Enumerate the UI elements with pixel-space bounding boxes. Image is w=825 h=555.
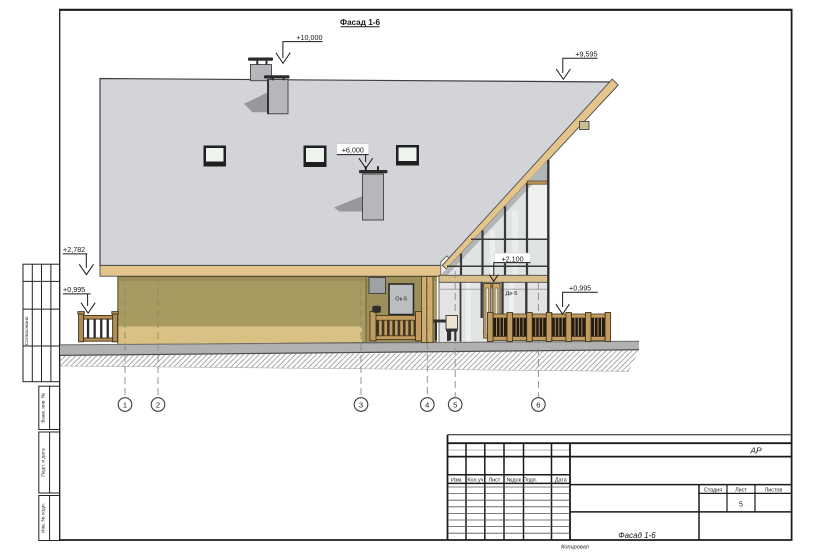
svg-text:Фасад 1-6: Фасад 1-6 bbox=[340, 18, 381, 27]
svg-text:Лист: Лист bbox=[489, 477, 501, 483]
svg-text:5: 5 bbox=[739, 502, 743, 509]
svg-text:Де-5: Де-5 bbox=[506, 291, 518, 297]
svg-text:4: 4 bbox=[425, 400, 429, 409]
svg-text:+0,995: +0,995 bbox=[63, 285, 85, 294]
svg-text:Подп. и дата: Подп. и дата bbox=[41, 448, 47, 477]
svg-text:+2,100: +2,100 bbox=[501, 254, 523, 263]
svg-text:2: 2 bbox=[156, 400, 160, 409]
svg-text:АР: АР bbox=[749, 445, 762, 455]
svg-text:Инв. № подл.: Инв. № подл. bbox=[41, 503, 47, 533]
svg-text:Взам. инв. №: Взам. инв. № bbox=[41, 393, 47, 423]
svg-text:+6,000: +6,000 bbox=[342, 145, 364, 154]
svg-text:+9,595: +9,595 bbox=[575, 50, 597, 59]
svg-text:Кол.уч: Кол.уч bbox=[467, 477, 483, 483]
svg-text:Листов: Листов bbox=[765, 487, 783, 493]
svg-text:3: 3 bbox=[359, 400, 363, 409]
svg-text:5: 5 bbox=[453, 400, 457, 409]
svg-text:Копировал: Копировал bbox=[561, 545, 590, 551]
svg-text:1: 1 bbox=[123, 400, 127, 409]
svg-text:Лист: Лист bbox=[735, 487, 747, 493]
svg-text:№док: №док bbox=[507, 477, 522, 483]
svg-text:+10,000: +10,000 bbox=[296, 33, 322, 42]
svg-text:Фасад 1-6: Фасад 1-6 bbox=[618, 531, 656, 540]
svg-text:+2,782: +2,782 bbox=[63, 245, 85, 254]
svg-text:Ок-5: Ок-5 bbox=[395, 297, 407, 303]
svg-text:Согласовано: Согласовано bbox=[24, 316, 30, 345]
svg-text:6: 6 bbox=[536, 400, 540, 409]
svg-text:Подп.: Подп. bbox=[523, 477, 537, 483]
svg-text:Стадия: Стадия bbox=[704, 487, 722, 493]
svg-text:Дата: Дата bbox=[555, 477, 567, 483]
svg-text:Изм.: Изм. bbox=[451, 477, 463, 483]
svg-text:+0,995: +0,995 bbox=[569, 284, 591, 293]
